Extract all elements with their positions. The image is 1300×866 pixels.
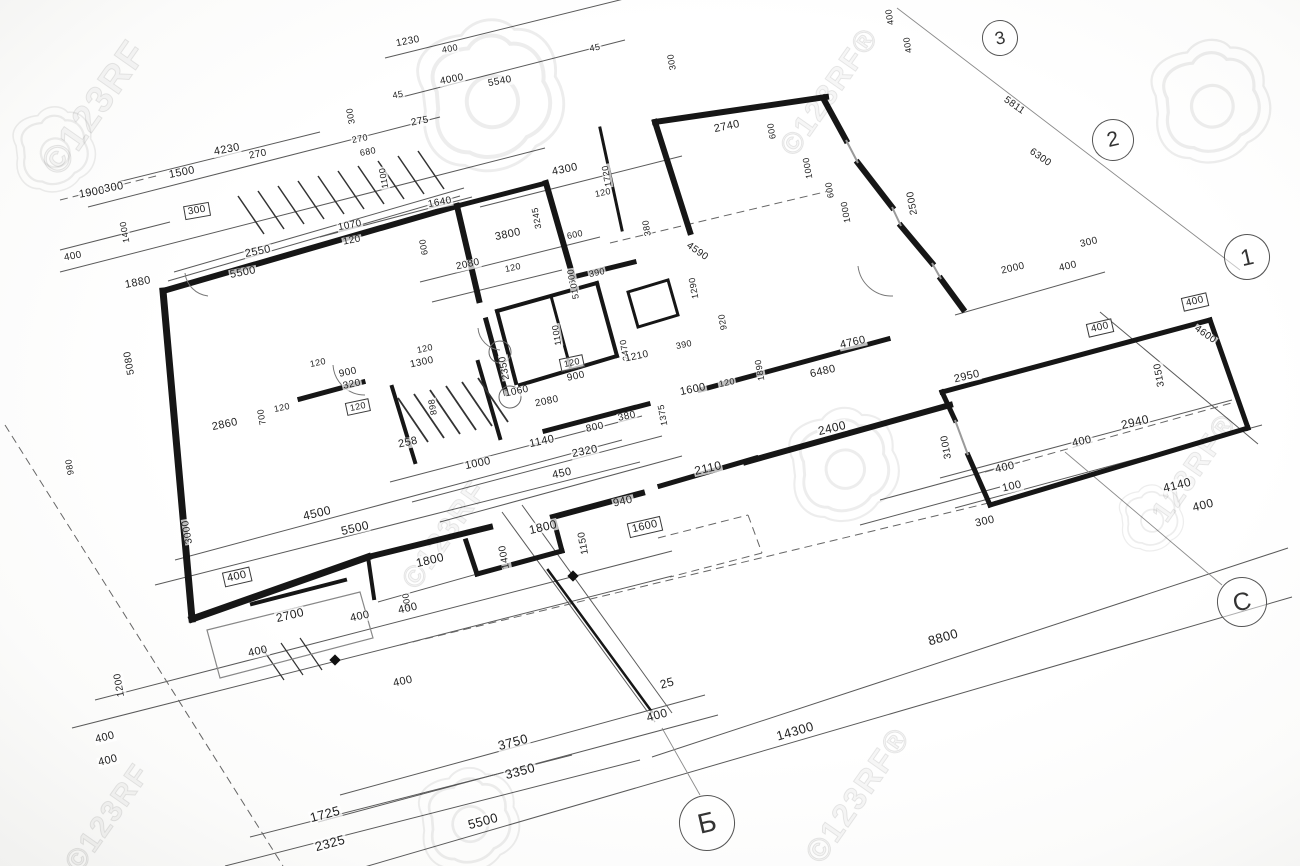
- dimension-label: 1060: [503, 384, 530, 399]
- dimension-label: 120: [272, 402, 292, 415]
- dimension-label: 1300: [408, 355, 435, 370]
- dimension-label: 400: [62, 250, 83, 264]
- dimension-label: 1140: [528, 434, 557, 450]
- dimension-label: 270: [350, 133, 370, 145]
- dimension-label: 400: [391, 674, 414, 690]
- grid-bubble-2: 2: [1088, 115, 1138, 165]
- dimension-label: 25: [658, 675, 677, 691]
- dimension-label: 2860: [210, 417, 240, 434]
- dimension-label: 390: [587, 267, 607, 280]
- dimension-label: 300: [1078, 236, 1100, 250]
- dimension-label: 400: [1070, 434, 1093, 450]
- dimension-label: 940: [611, 494, 634, 510]
- dimension-label: 1375: [657, 403, 670, 428]
- dimension-label: 450: [550, 466, 573, 481]
- dimension-label: 4600: [1192, 323, 1219, 346]
- dimension-label: 400: [1057, 260, 1079, 274]
- dimension-label: 400: [1181, 292, 1209, 311]
- dimension-label: 1290: [688, 276, 701, 301]
- dimension-label: 3750: [496, 732, 531, 753]
- dimension-label: 300: [666, 52, 678, 72]
- watermark-text: ©123RF: [395, 474, 494, 595]
- dimension-label: 6300: [1027, 146, 1054, 169]
- dimension-label: 1100: [551, 323, 564, 347]
- dimension-label: 400: [222, 567, 252, 588]
- dimension-label: 2110: [692, 459, 723, 477]
- dimension-label: 900: [565, 370, 587, 384]
- dimension-label: 1725: [308, 804, 343, 825]
- dimension-label: 1890: [754, 358, 767, 383]
- dimension-label: 400: [93, 730, 117, 746]
- dimension-label: 4230: [212, 142, 242, 158]
- dimension-label: 5500: [339, 519, 371, 538]
- watermark-text: ©123RF®: [798, 720, 918, 866]
- dimension-label: 2950: [952, 368, 982, 385]
- watermark-text: ©123RF: [58, 757, 157, 866]
- dimension-label: 1800: [527, 518, 559, 537]
- dimension-label: 6480: [808, 363, 838, 380]
- dimension-label: 700: [256, 407, 268, 427]
- dimension-label: 1100: [378, 166, 391, 190]
- dimension-label: 400: [1086, 318, 1114, 337]
- dimension-label: 390: [674, 339, 694, 352]
- dimension-label: 600: [824, 180, 836, 200]
- dimension-label: 120: [308, 357, 328, 370]
- dimension-label: 1600: [678, 382, 708, 399]
- dimension-label: 100: [1000, 479, 1023, 495]
- dimension-label: 898: [427, 397, 439, 417]
- dimension-label: 5811: [1001, 95, 1027, 118]
- dimension-label: 3800: [493, 227, 523, 244]
- dimension-label: 120: [415, 343, 435, 356]
- dimension-label: 800: [584, 421, 606, 435]
- blueprint-photo: ©123RF©123RF®©123RF123RF®©123RF©123RF®12…: [0, 0, 1300, 866]
- dimension-label: 400: [644, 706, 670, 724]
- dimension-label: 2550: [243, 244, 273, 260]
- dimension-label: 4590: [684, 240, 711, 263]
- dimension-label-layer: ©123RF©123RF®©123RF123RF®©123RF©123RF®12…: [0, 0, 1300, 866]
- dimension-label: 400: [993, 460, 1016, 476]
- dimension-label: 2940: [1119, 413, 1151, 432]
- watermark-camera-icon: [1141, 34, 1284, 177]
- dimension-label: 400: [348, 609, 371, 625]
- dimension-label: 4760: [838, 334, 868, 351]
- dimension-label: 1500: [167, 165, 197, 181]
- dimension-label: 600: [565, 229, 585, 242]
- dimension-label: 380: [641, 218, 653, 238]
- dimension-label: 400: [96, 753, 120, 769]
- dimension-label: 1200: [113, 671, 127, 698]
- dimension-label: 680: [358, 146, 378, 158]
- dimension-label: 1720: [601, 164, 614, 189]
- dimension-label: 300: [345, 106, 357, 126]
- dimension-label: 3245: [531, 206, 544, 231]
- dimension-label: 1640: [426, 196, 453, 211]
- dimension-label: 2320: [570, 444, 600, 461]
- dimension-label: 510: [569, 281, 581, 301]
- dimension-label: 380: [616, 410, 638, 424]
- dimension-label: 270: [247, 148, 268, 162]
- dimension-label: 120: [345, 398, 371, 416]
- dimension-label: 1000: [463, 456, 493, 473]
- dimension-label: 8800: [926, 626, 961, 647]
- dimension-label: 300: [102, 181, 125, 196]
- grid-bubble-3: 3: [978, 16, 1021, 59]
- dimension-label: 2325: [313, 833, 348, 854]
- dimension-label: 2500: [906, 189, 920, 216]
- dimension-label: 1400: [498, 543, 512, 570]
- dimension-label: 120: [503, 262, 523, 275]
- dimension-label: 320: [341, 378, 363, 392]
- dimension-label: 920: [717, 312, 729, 332]
- dimension-label: 5500: [228, 265, 258, 281]
- dimension-label: 1000: [802, 156, 815, 181]
- dimension-label: 600: [766, 121, 778, 141]
- dimension-label: 120: [593, 187, 613, 200]
- dimension-label: 3100: [940, 433, 954, 460]
- dimension-label: 45: [588, 42, 602, 53]
- watermark-camera-icon: [404, 12, 580, 188]
- dimension-label: 400: [246, 644, 269, 660]
- dimension-label: 120: [717, 377, 737, 390]
- dimension-label: 45: [391, 89, 405, 100]
- dimension-label: 4500: [301, 504, 333, 523]
- dimension-label: 980: [64, 457, 76, 477]
- watermark-text: ©123RF®: [774, 22, 887, 163]
- dimension-label: 2700: [274, 606, 306, 625]
- dimension-label: 1600: [627, 516, 664, 538]
- dimension-label: 258: [396, 435, 419, 450]
- dimension-label: 600: [418, 237, 430, 257]
- dimension-label: 1880: [123, 275, 153, 291]
- dimension-label: 400: [902, 35, 914, 55]
- grid-bubble-1: 1: [1219, 229, 1274, 284]
- dimension-label: 14300: [774, 719, 816, 743]
- dimension-label: 2000: [999, 261, 1026, 277]
- grid-bubble-Б: Б: [673, 789, 740, 856]
- dimension-label: 300: [973, 514, 996, 530]
- dimension-label: 2740: [712, 119, 742, 136]
- dimension-label: 400: [396, 601, 419, 617]
- dimension-label: 1400: [119, 220, 132, 245]
- dimension-label: 3150: [1153, 361, 1167, 388]
- dimension-label: 400: [884, 7, 896, 27]
- dimension-label: 2350: [498, 354, 512, 381]
- dimension-label: 400: [1190, 496, 1215, 513]
- dimension-label: 1150: [577, 530, 591, 556]
- dimension-label: 300: [183, 202, 211, 220]
- dimension-label: 2080: [533, 394, 560, 409]
- dimension-label: 2080: [454, 257, 481, 272]
- dimension-label: 1000: [840, 200, 853, 225]
- dimension-label: 5080: [123, 349, 137, 376]
- dimension-label: 3000: [181, 518, 195, 545]
- dimension-label: 120: [341, 234, 362, 248]
- grid-bubble-C: C: [1212, 572, 1272, 632]
- dimension-label: 1070: [336, 219, 363, 234]
